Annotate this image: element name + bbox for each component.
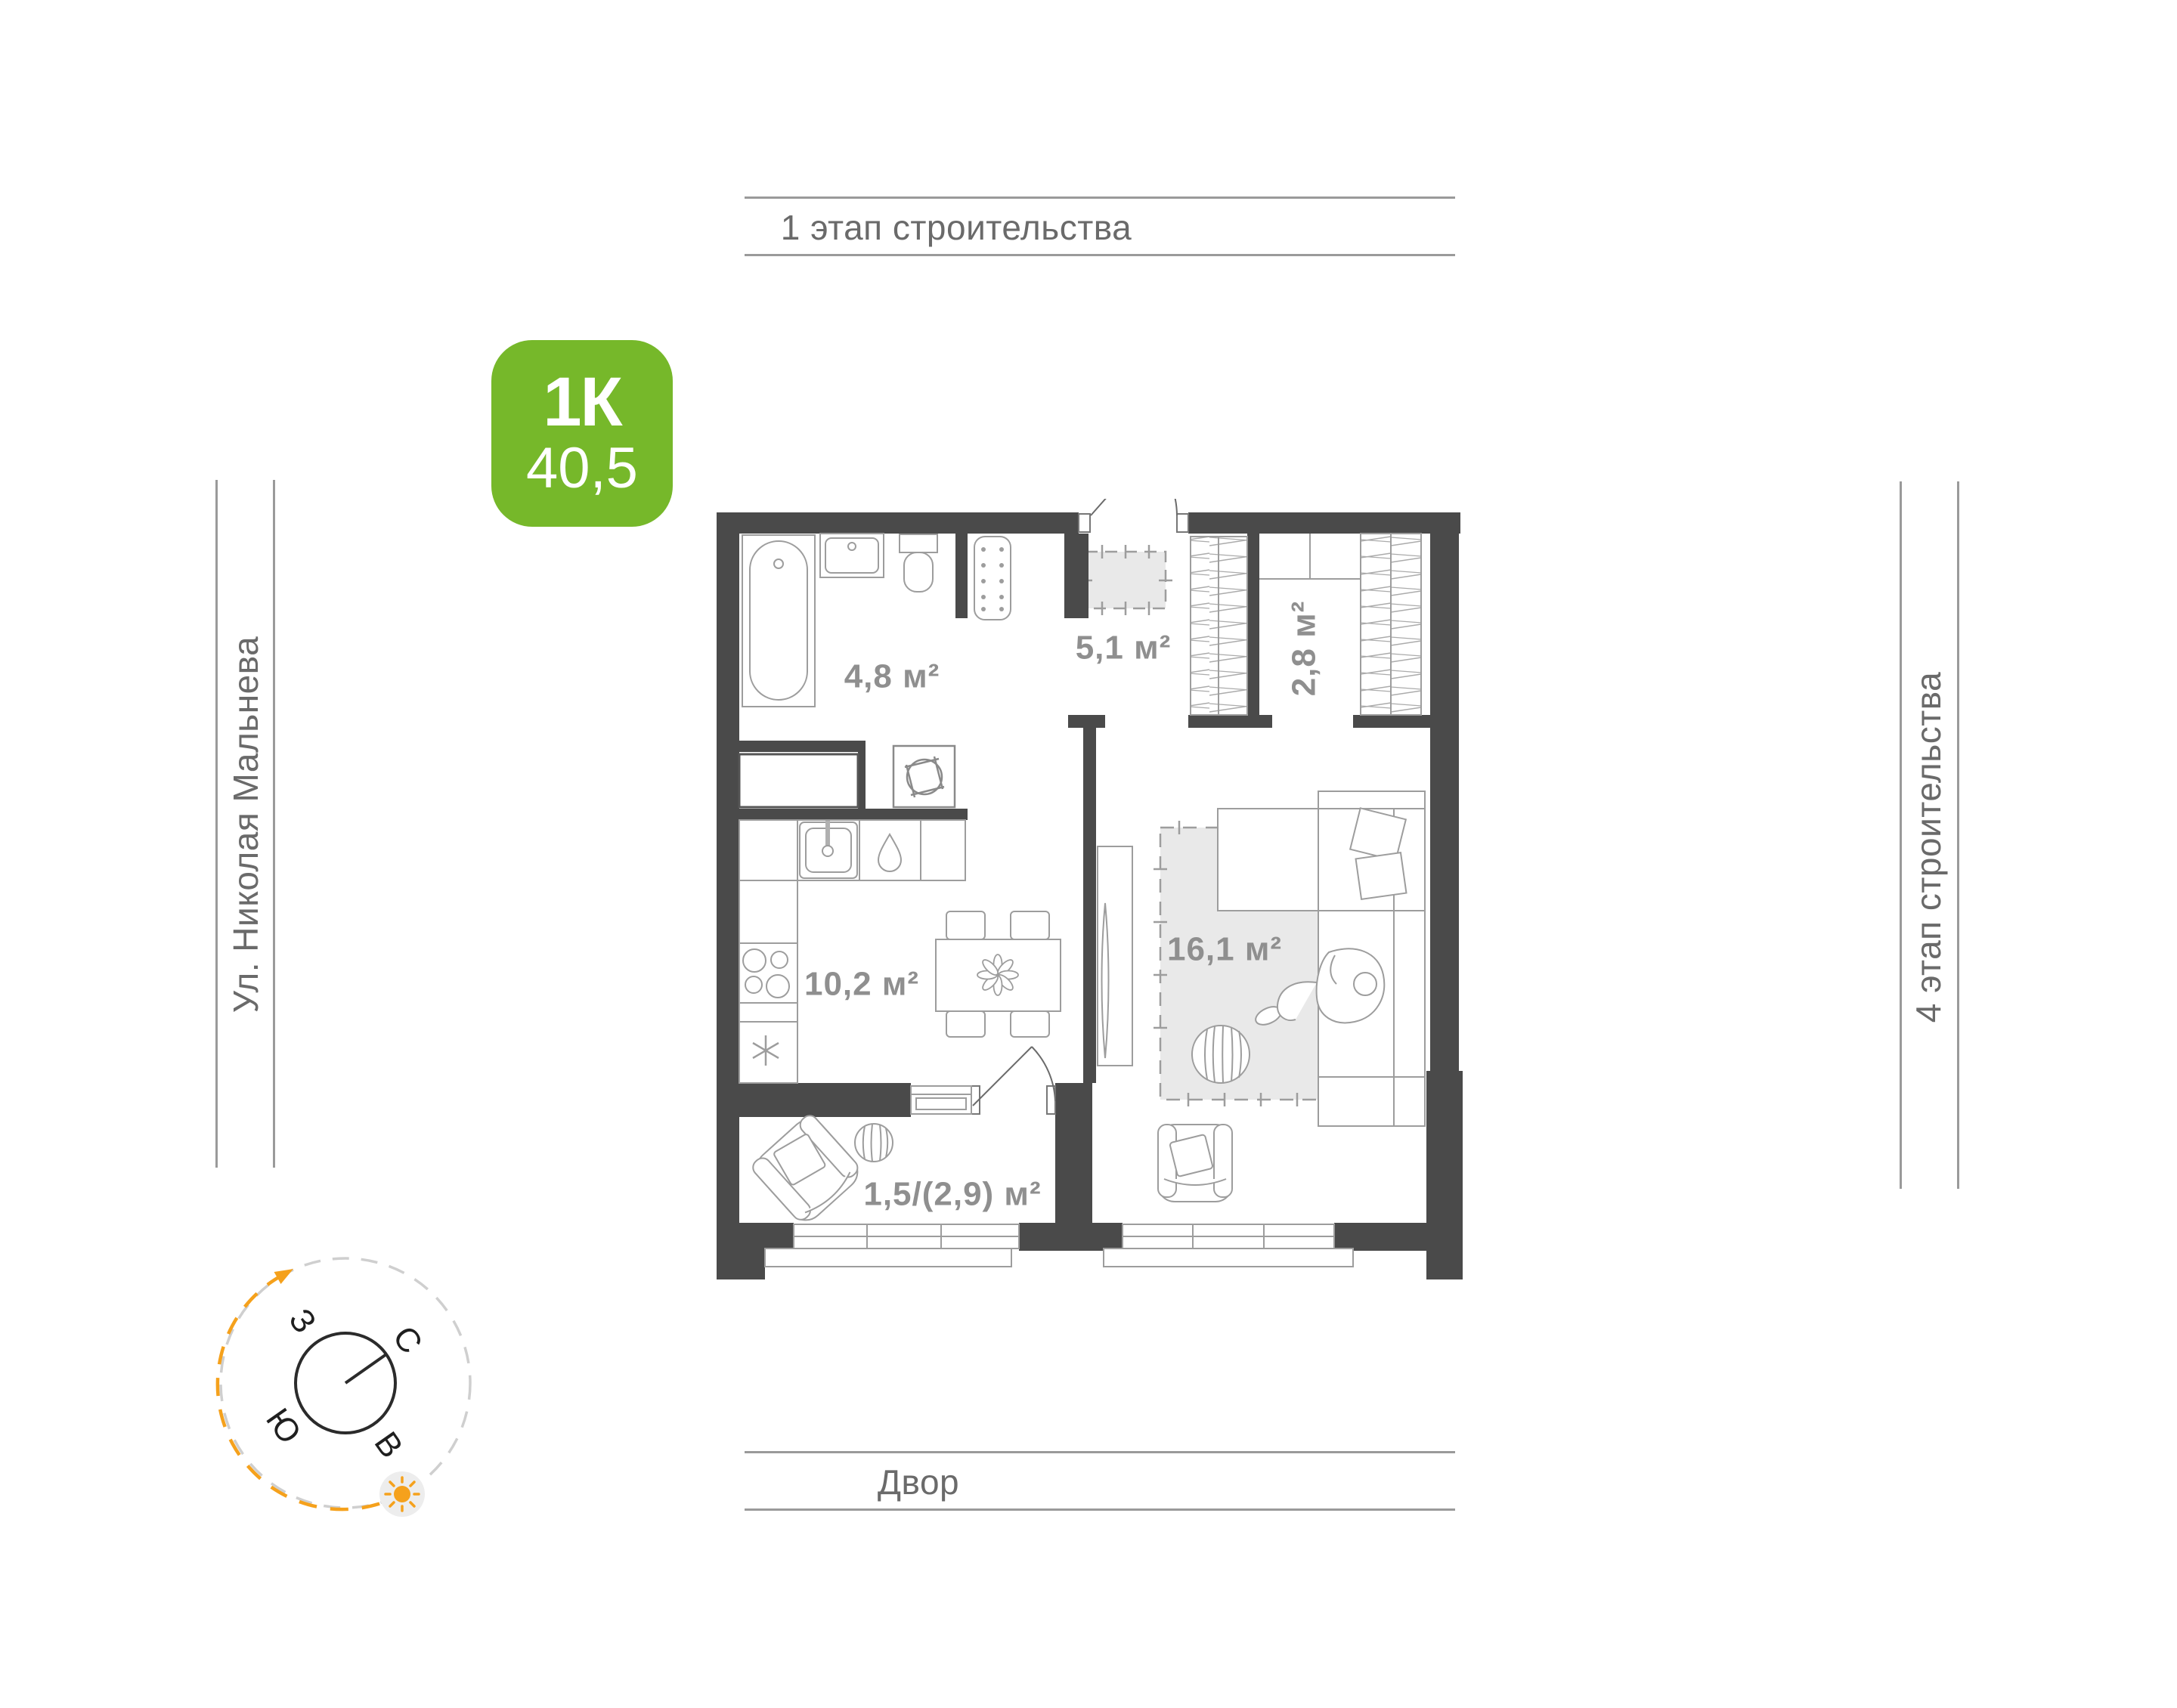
left-guide-line-outer [215, 480, 218, 1168]
closet-wardrobe [1259, 534, 1421, 715]
bathtub [742, 535, 815, 707]
compass-arrowhead-icon [274, 1269, 294, 1284]
kitchen-area-label: 10,2 м² [804, 966, 919, 1003]
balcony-area-label: 1,5/(2,9) м² [863, 1176, 1041, 1213]
balcony-pouf [855, 1124, 893, 1162]
toilet [900, 534, 937, 592]
closet-area-label: 2,8 м² [1286, 601, 1323, 697]
balcony-armchair [750, 1112, 866, 1228]
sliding-panel [1098, 846, 1132, 1066]
living-room-window [1104, 1224, 1353, 1267]
hallway-area-label: 5,1 м² [1076, 630, 1172, 667]
compass-east-label: В [367, 1425, 410, 1465]
living-room-area-label: 16,1 м² [1167, 931, 1282, 968]
floor-plan: 4,8 м² 5,1 м² 2,8 м² 10,2 м² 16,1 м² 1,5… [703, 499, 1474, 1300]
top-guide-line-lower [745, 254, 1455, 256]
sun-icon [379, 1471, 425, 1517]
bottom-guide-label: Двор [767, 1462, 1070, 1502]
badge-rooms-label: 1К [543, 367, 621, 437]
bathroom-area-label: 4,8 м² [844, 658, 940, 695]
hallway-wardrobe [1191, 537, 1247, 715]
left-guide-label: Ул. Николая Мальнева [225, 447, 266, 1202]
washing-machine [893, 746, 955, 807]
balcony-door-window-unit [911, 1086, 971, 1114]
compass: З С Ю В [189, 1224, 506, 1542]
duct-niche [739, 754, 858, 807]
bottom-guide-line-lower [745, 1508, 1455, 1511]
badge-area-value: 40,5 [526, 437, 638, 500]
compass-north-label: С [386, 1320, 429, 1360]
towel-dryer [974, 537, 1011, 620]
compass-south-label: Ю [259, 1402, 308, 1451]
left-guide-line-inner [273, 480, 275, 1168]
right-guide-label: 4 этап строительства [1908, 469, 1949, 1225]
apartment-type-badge: 1К 40,5 [491, 340, 673, 527]
bathroom-sink [820, 534, 884, 577]
bottom-guide-line-upper [745, 1451, 1455, 1453]
kitchen-sink [800, 821, 857, 878]
top-guide-label: 1 этап строительства [729, 207, 1183, 248]
right-guide-line-inner [1900, 481, 1902, 1189]
entrance-door [1091, 499, 1177, 515]
balcony-door [973, 1047, 1055, 1106]
hallway-storage-zone [1079, 545, 1172, 615]
floor-pouf [1192, 1026, 1250, 1083]
compass-west-label: З [281, 1302, 323, 1340]
top-guide-line-upper [745, 196, 1455, 199]
living-armchair [1158, 1125, 1232, 1202]
balcony-window [765, 1224, 1019, 1267]
right-guide-line-outer [1957, 481, 1959, 1189]
